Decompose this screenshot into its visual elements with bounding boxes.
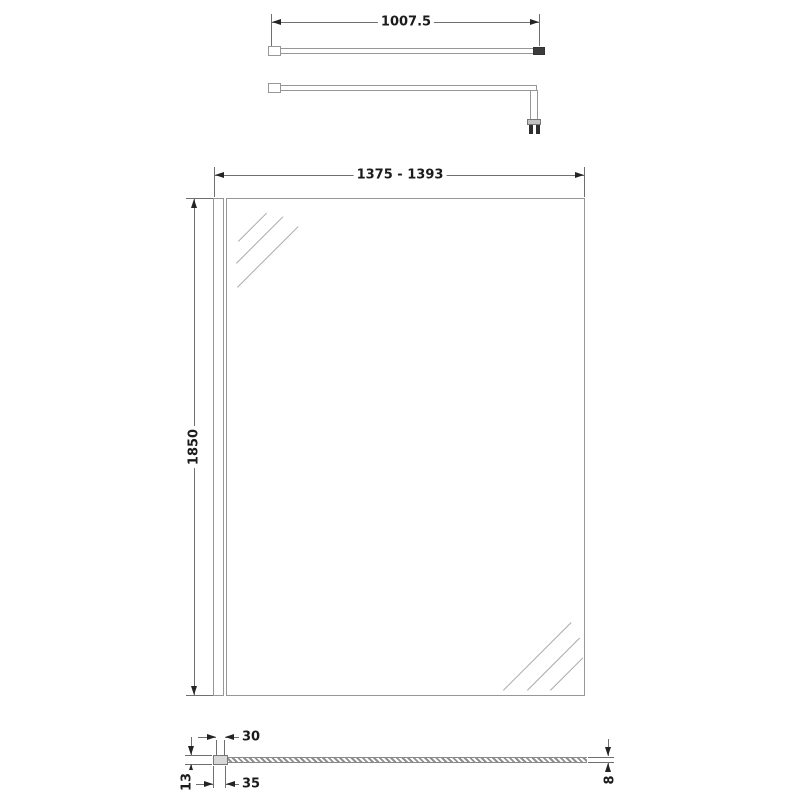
arrowhead-down-icon	[191, 686, 197, 695]
extension-line	[539, 14, 540, 46]
arrowhead-left-icon	[226, 781, 235, 787]
arrowhead-right-icon	[530, 19, 539, 25]
arrowhead-left-icon	[272, 19, 281, 25]
extension-line	[588, 757, 614, 758]
profile-width-label: 35	[239, 777, 263, 792]
glass-clamp-end	[533, 47, 545, 55]
clamp-prong	[536, 125, 540, 134]
support-bar	[280, 85, 537, 91]
arrowhead-right-icon	[207, 734, 216, 740]
wall-profile	[213, 198, 224, 696]
glass-panel	[226, 198, 585, 696]
extension-line	[185, 755, 212, 756]
arrowhead-right-icon	[575, 172, 584, 178]
arrowhead-up-icon	[191, 199, 197, 208]
wall-profile-section	[213, 755, 228, 765]
support-bar	[280, 48, 535, 54]
extension-line	[584, 167, 585, 197]
extension-line	[216, 740, 217, 756]
adjustment-label: 30	[239, 730, 263, 745]
technical-drawing-canvas: 1007.5 1375 - 1393 1850	[0, 0, 800, 800]
glass-panel-section	[227, 757, 587, 763]
arrowhead-left-icon	[225, 734, 234, 740]
screen-width-label: 1375 - 1393	[354, 168, 447, 183]
extension-line	[186, 695, 214, 696]
support-bar-length-label: 1007.5	[378, 15, 434, 30]
bar-bend-down	[530, 90, 538, 120]
extension-line	[213, 766, 214, 788]
arrowhead-down-icon	[188, 746, 194, 755]
extension-line	[224, 740, 225, 756]
glass-thickness-label: 8	[603, 772, 618, 787]
profile-depth-label: 13	[180, 770, 195, 794]
arrowhead-right-icon	[204, 781, 213, 787]
clamp-prong	[529, 125, 533, 134]
arrowhead-left-icon	[215, 172, 224, 178]
arrowhead-up-icon	[605, 763, 611, 772]
arrowhead-down-icon	[605, 747, 611, 756]
screen-height-label: 1850	[187, 426, 202, 468]
